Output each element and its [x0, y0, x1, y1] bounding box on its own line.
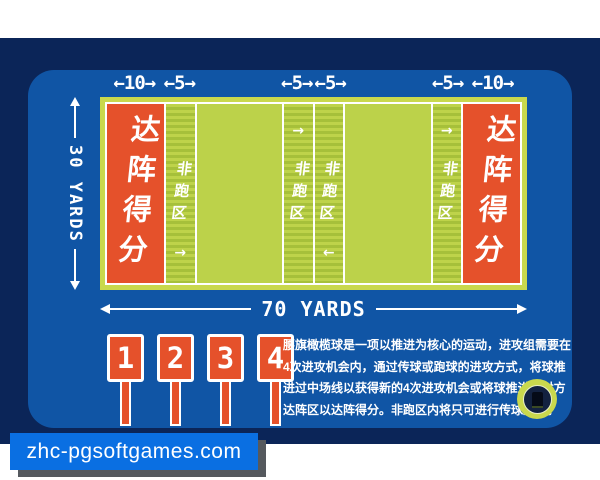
top-dimension-row: ←10→ ←5→ ←5→ ←5→ ←5→ ←10→ — [107, 72, 520, 94]
dimension-label-10-right: ←10→ — [465, 72, 520, 94]
no-run-zone-label: 非跑区 — [435, 161, 458, 227]
dimension-label-5-left: ←5→ — [164, 72, 195, 94]
watermark-link[interactable]: zhc-pgsoftgames.com — [27, 440, 242, 464]
dimension-label-5-right: ←5→ — [432, 72, 463, 94]
dimension-line — [74, 106, 76, 138]
left-dimension-label: 30 YARDS — [65, 145, 85, 243]
dimension-line — [376, 308, 517, 310]
end-zone-right: 达阵得分 — [463, 104, 520, 283]
no-run-zone-1: 非跑区 → — [166, 104, 195, 283]
dimension-label-5-midright: ←5→ — [315, 72, 346, 94]
down-marker-2: 2 — [157, 334, 194, 426]
arrow-down-icon — [70, 281, 80, 290]
rules-text: 腰旗橄榄球是一项以推进为核心的运动，进攻组需要在 4次进攻机会内，通过传球或跑球… — [283, 335, 555, 421]
field-diagram: 达阵得分 非跑区 → 非跑区 → 非跑区 ← 非跑区 → 达阵得分 — [100, 97, 527, 290]
down-marker-stick — [170, 382, 181, 426]
arrow-right-icon — [517, 304, 527, 314]
dimension-spacer — [197, 72, 279, 94]
rule-line: 进过中场线以获得新的4次进攻机会或将球推进至对方 — [283, 378, 555, 400]
rule-line: 腰旗橄榄球是一项以推进为核心的运动，进攻组需要在 — [283, 335, 555, 357]
direction-arrow-icon: → — [174, 246, 186, 260]
dimension-label-10-left: ←10→ — [107, 72, 162, 94]
rule-line: 4次进攻机会内，通过传球或跑球的进攻方式，将球推 — [283, 357, 555, 379]
end-zone-left: 达阵得分 — [107, 104, 164, 283]
down-markers: 1 2 3 4 — [107, 334, 294, 426]
end-zone-left-label: 达阵得分 — [113, 114, 159, 274]
down-marker-stick — [220, 382, 231, 426]
bottom-dimension-label: 70 YARDS — [261, 297, 365, 321]
dimension-spacer — [348, 72, 430, 94]
down-marker-number: 3 — [207, 334, 244, 382]
infographic-page: ←10→ ←5→ ←5→ ←5→ ←5→ ←10→ 30 YARDS 达阵得分 … — [0, 0, 600, 480]
no-run-zone-3: 非跑区 ← — [315, 104, 344, 283]
down-marker-number: 2 — [157, 334, 194, 382]
arrow-up-icon — [70, 97, 80, 106]
no-run-zone-label: 非跑区 — [169, 161, 192, 227]
down-marker-stick — [270, 382, 281, 426]
watermark-bar: zhc-pgsoftgames.com — [10, 433, 258, 470]
left-dimension: 30 YARDS — [62, 97, 88, 290]
no-run-zone-2: 非跑区 → — [284, 104, 313, 283]
direction-arrow-icon: → — [441, 124, 453, 138]
down-marker-1: 1 — [107, 334, 144, 426]
arrow-left-icon — [100, 304, 110, 314]
no-run-zone-4: 非跑区 → — [433, 104, 462, 283]
down-marker-number: 1 — [107, 334, 144, 382]
dimension-line — [110, 308, 251, 310]
field-zones: 达阵得分 非跑区 → 非跑区 → 非跑区 ← 非跑区 → 达阵得分 — [105, 102, 522, 285]
dimension-label-5-midleft: ←5→ — [281, 72, 312, 94]
down-marker-3: 3 — [207, 334, 244, 426]
open-zone-left — [197, 104, 283, 283]
end-zone-right-label: 达阵得分 — [469, 114, 515, 274]
no-run-zone-label: 非跑区 — [317, 161, 340, 227]
open-zone-right — [345, 104, 431, 283]
badge-inner-ring — [523, 385, 552, 414]
bottom-dimension: 70 YARDS — [100, 298, 527, 320]
direction-arrow-icon: ← — [323, 246, 335, 260]
badge-emblem-icon — [532, 392, 543, 406]
down-marker-stick — [120, 382, 131, 426]
badge-logo — [517, 379, 557, 419]
direction-arrow-icon: → — [292, 124, 304, 138]
no-run-zone-label: 非跑区 — [287, 161, 310, 227]
dimension-line — [74, 249, 76, 281]
rule-line: 达阵区以达阵得分。非跑区内将只可进行传球进攻。 — [283, 400, 555, 422]
